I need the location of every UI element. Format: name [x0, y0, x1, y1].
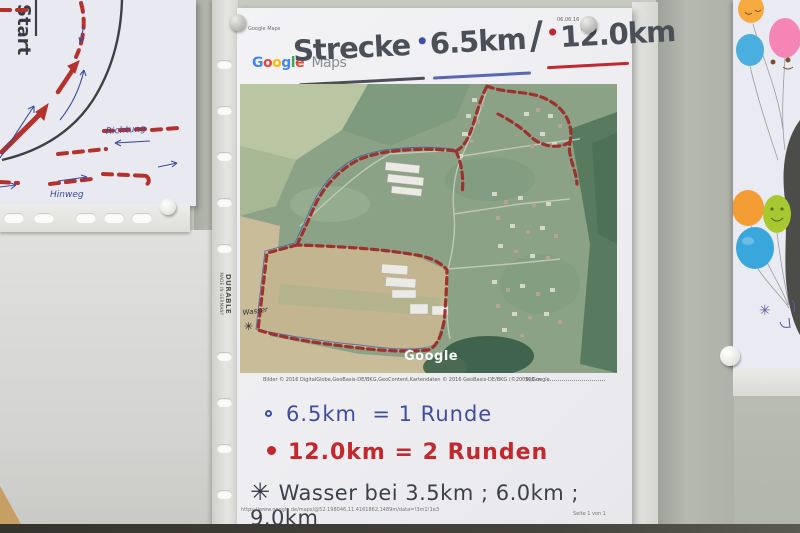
punched-hole [217, 490, 232, 499]
blank-panel [0, 230, 215, 528]
legend-red-bullet-icon [267, 446, 276, 455]
wasser-star-icon: ✳ [244, 320, 253, 333]
hinweg-label: Hinweg [50, 190, 84, 200]
pushpin-right [720, 346, 740, 366]
legend3-text: Wasser bei 3.5km ; 6.0km ; 9.0km [250, 481, 579, 530]
pushpin-top-right [580, 16, 597, 33]
balloons-drawing: ✳ [733, 0, 800, 368]
punched-hole [217, 244, 232, 253]
purple-star-icon: ✳ [759, 303, 771, 319]
legend1-rounds: = 1 Runde [372, 402, 492, 426]
punched-hole [217, 352, 232, 361]
legend2-rounds: = 2 Runden [395, 440, 549, 465]
shelf-shadow [0, 524, 800, 533]
left-route-sketch-sheet: Start [0, 0, 196, 206]
sleeve-brand-name: DURABLE [224, 274, 232, 314]
sleeve-punched-strip: DURABLE MADE IN GERMANY [212, 0, 238, 527]
red-route-arrows [2, 61, 79, 152]
sleeve-made-in: MADE IN GERMANY [219, 265, 223, 323]
punched-hole [104, 213, 124, 223]
punched-hole [217, 152, 232, 161]
punched-hole [217, 106, 232, 115]
satellite-map: Wasser ✳ Google [240, 84, 617, 373]
richtung-label: Richtung [106, 124, 147, 137]
footer-page-number: Seite 1 von 1 [573, 511, 606, 517]
wall-gap [194, 0, 214, 240]
legend1-distance: 6.5km [286, 402, 357, 426]
title-dist-2: 12.0km [559, 14, 676, 54]
pushpin-top-left [229, 14, 246, 31]
punched-hole [217, 198, 232, 207]
sleeve-brand: DURABLE MADE IN GERMANY [219, 265, 231, 323]
legend-line-3: ✳Wasser bei 3.5km ; 6.0km ; 9.0km [250, 478, 632, 530]
right-sleeve-edge [733, 368, 800, 396]
footer-url: https://www.google.de/maps/@52.198046,11… [241, 507, 439, 513]
map-scale-label: 100 m [525, 377, 541, 383]
noticeboard-photo: Start [0, 0, 800, 533]
google-watermark: Google [404, 349, 458, 364]
legend-blue-bullet-icon [265, 410, 272, 417]
logo-letter: o [263, 55, 272, 71]
cardboard-corner [0, 486, 22, 526]
title-strecke: Strecke [292, 28, 411, 68]
sleeve-right-margin [632, 2, 658, 527]
legend-line-2: 12.0km = 2 Runden [267, 440, 548, 465]
legend-star-icon: ✳ [250, 478, 271, 506]
strecke-map-sheet: Google Maps 06.06.16 Google Maps Strecke… [237, 8, 632, 527]
underline-blue [433, 71, 531, 79]
title-bullet-blue: • [415, 29, 428, 54]
legend-line-1: 6.5km = 1 Runde [265, 402, 492, 426]
logo-letter: g [281, 55, 291, 71]
punched-hole [217, 60, 232, 69]
logo-letter: o [272, 55, 281, 71]
punched-hole [4, 213, 24, 223]
punched-hole [132, 213, 152, 223]
top-balloons [736, 0, 800, 69]
punched-hole [217, 444, 232, 453]
pushpin-left [160, 199, 176, 215]
logo-letter: G [252, 55, 263, 71]
right-balloons-sheet: ✳ [733, 0, 800, 368]
punched-hole [76, 213, 96, 223]
wall-right [656, 0, 734, 533]
map-scale-line [547, 380, 605, 381]
punched-hole [217, 398, 232, 407]
route-sketch-drawing: Start [0, 0, 196, 206]
title-slash: / [528, 13, 543, 58]
punched-hole [34, 213, 54, 223]
underline-red [547, 62, 629, 69]
balloon-cluster [733, 190, 791, 269]
print-header-app: Google Maps [248, 26, 280, 32]
title-bullet-red: • [546, 20, 559, 45]
title-dist-1: 6.5km [429, 22, 527, 61]
legend2-distance: 12.0km [288, 440, 386, 465]
